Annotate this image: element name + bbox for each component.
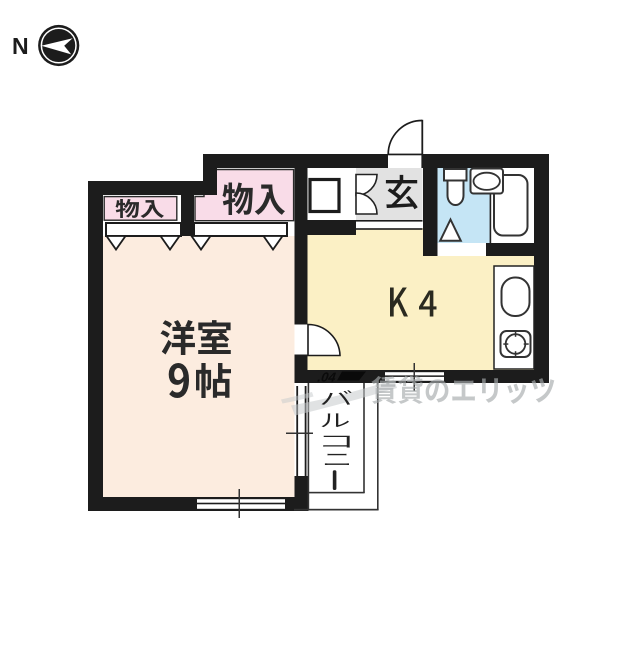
- svg-text:N: N: [12, 33, 29, 59]
- svg-text:.04: .04: [317, 370, 338, 385]
